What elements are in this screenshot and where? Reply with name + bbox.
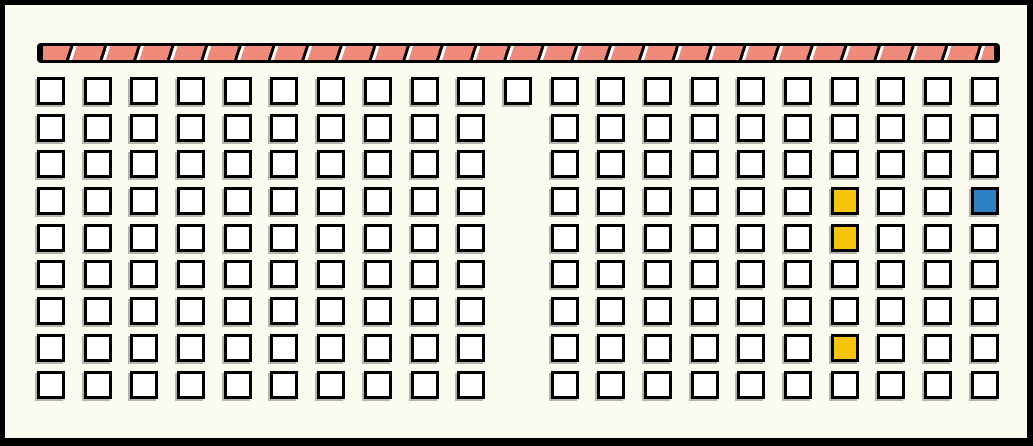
seat[interactable] <box>84 114 112 142</box>
seat[interactable] <box>37 187 65 215</box>
seat[interactable] <box>597 150 625 178</box>
seat[interactable] <box>224 334 252 362</box>
seat[interactable] <box>924 77 952 105</box>
seat[interactable] <box>644 260 672 288</box>
seat[interactable] <box>364 371 392 399</box>
seat[interactable] <box>597 297 625 325</box>
seat[interactable] <box>877 187 905 215</box>
seat[interactable] <box>644 77 672 105</box>
seat[interactable] <box>877 297 905 325</box>
seat[interactable] <box>317 224 345 252</box>
seat[interactable] <box>177 260 205 288</box>
seat[interactable] <box>37 77 65 105</box>
seat[interactable] <box>597 114 625 142</box>
seat[interactable] <box>784 334 812 362</box>
seat[interactable] <box>551 297 579 325</box>
seat[interactable] <box>84 334 112 362</box>
seat[interactable] <box>130 77 158 105</box>
seat[interactable] <box>551 260 579 288</box>
seat[interactable] <box>971 187 999 215</box>
seat[interactable] <box>177 150 205 178</box>
seat[interactable] <box>177 334 205 362</box>
seat[interactable] <box>551 150 579 178</box>
seat[interactable] <box>924 297 952 325</box>
seat[interactable] <box>644 187 672 215</box>
seat[interactable] <box>224 187 252 215</box>
seat[interactable] <box>877 150 905 178</box>
seat[interactable] <box>130 297 158 325</box>
room-frame <box>0 0 1033 446</box>
seat[interactable] <box>364 224 392 252</box>
seat[interactable] <box>877 77 905 105</box>
seat[interactable] <box>364 260 392 288</box>
seat[interactable] <box>411 150 439 178</box>
seat[interactable] <box>37 260 65 288</box>
seat[interactable] <box>457 187 485 215</box>
seat[interactable] <box>737 224 765 252</box>
seat[interactable] <box>177 371 205 399</box>
seat[interactable] <box>644 224 672 252</box>
seat[interactable] <box>364 187 392 215</box>
seat[interactable] <box>784 260 812 288</box>
seat[interactable] <box>644 297 672 325</box>
seat[interactable] <box>457 297 485 325</box>
seat[interactable] <box>691 114 719 142</box>
seat[interactable] <box>551 371 579 399</box>
seat-grid <box>37 77 999 399</box>
seat[interactable] <box>691 297 719 325</box>
seat[interactable] <box>737 150 765 178</box>
seat[interactable] <box>691 187 719 215</box>
seat[interactable] <box>831 297 859 325</box>
seat[interactable] <box>597 260 625 288</box>
seat[interactable] <box>317 260 345 288</box>
seat[interactable] <box>737 334 765 362</box>
seat[interactable] <box>270 297 298 325</box>
seat[interactable] <box>364 297 392 325</box>
seat[interactable] <box>597 224 625 252</box>
seat[interactable] <box>691 150 719 178</box>
seat[interactable] <box>784 114 812 142</box>
seat[interactable] <box>270 224 298 252</box>
seat[interactable] <box>84 224 112 252</box>
seat[interactable] <box>971 371 999 399</box>
seat[interactable] <box>924 150 952 178</box>
seat[interactable] <box>364 150 392 178</box>
seat[interactable] <box>224 260 252 288</box>
seat[interactable] <box>84 77 112 105</box>
seat[interactable] <box>551 224 579 252</box>
seat[interactable] <box>831 150 859 178</box>
seat[interactable] <box>270 150 298 178</box>
seat[interactable] <box>831 371 859 399</box>
seat[interactable] <box>597 371 625 399</box>
seat[interactable] <box>644 114 672 142</box>
seat[interactable] <box>457 150 485 178</box>
seat[interactable] <box>924 260 952 288</box>
seat[interactable] <box>924 114 952 142</box>
seat[interactable] <box>130 114 158 142</box>
seat[interactable] <box>457 224 485 252</box>
seat[interactable] <box>411 334 439 362</box>
seat[interactable] <box>877 224 905 252</box>
seat[interactable] <box>691 224 719 252</box>
seat[interactable] <box>37 114 65 142</box>
seat[interactable] <box>924 187 952 215</box>
seat[interactable] <box>784 371 812 399</box>
seat[interactable] <box>971 334 999 362</box>
seat[interactable] <box>224 77 252 105</box>
seat[interactable] <box>784 224 812 252</box>
seat[interactable] <box>457 334 485 362</box>
seat[interactable] <box>270 260 298 288</box>
seat[interactable] <box>457 260 485 288</box>
seat[interactable] <box>177 114 205 142</box>
seat[interactable] <box>784 187 812 215</box>
seat[interactable] <box>644 371 672 399</box>
seat[interactable] <box>971 297 999 325</box>
seat[interactable] <box>84 260 112 288</box>
seat[interactable] <box>37 150 65 178</box>
seat[interactable] <box>691 77 719 105</box>
seat[interactable] <box>411 297 439 325</box>
seat[interactable] <box>84 150 112 178</box>
seat[interactable] <box>317 297 345 325</box>
seat[interactable] <box>551 114 579 142</box>
seat[interactable] <box>971 114 999 142</box>
seat[interactable] <box>224 297 252 325</box>
seat[interactable] <box>737 297 765 325</box>
seat[interactable] <box>177 297 205 325</box>
seat[interactable] <box>270 77 298 105</box>
seat[interactable] <box>877 114 905 142</box>
seat[interactable] <box>877 334 905 362</box>
seat[interactable] <box>317 77 345 105</box>
seat[interactable] <box>644 334 672 362</box>
seat[interactable] <box>691 260 719 288</box>
seat[interactable] <box>457 114 485 142</box>
front-stripe-bar <box>37 43 1000 63</box>
seat[interactable] <box>411 77 439 105</box>
seat[interactable] <box>877 260 905 288</box>
seat[interactable] <box>924 224 952 252</box>
seat[interactable] <box>317 334 345 362</box>
seat[interactable] <box>317 187 345 215</box>
seat[interactable] <box>130 224 158 252</box>
seat[interactable] <box>84 297 112 325</box>
seat[interactable] <box>971 224 999 252</box>
seat[interactable] <box>364 77 392 105</box>
seat[interactable] <box>737 114 765 142</box>
seat[interactable] <box>130 187 158 215</box>
seat[interactable] <box>224 150 252 178</box>
seat[interactable] <box>130 150 158 178</box>
seat[interactable] <box>411 260 439 288</box>
seat[interactable] <box>971 260 999 288</box>
seat[interactable] <box>411 371 439 399</box>
seat[interactable] <box>177 224 205 252</box>
seat[interactable] <box>597 187 625 215</box>
seat[interactable] <box>831 114 859 142</box>
seat[interactable] <box>551 334 579 362</box>
seat[interactable] <box>457 77 485 105</box>
seat[interactable] <box>270 371 298 399</box>
seat[interactable] <box>971 150 999 178</box>
seat[interactable] <box>597 77 625 105</box>
seat[interactable] <box>37 224 65 252</box>
seat[interactable] <box>177 187 205 215</box>
seat[interactable] <box>924 334 952 362</box>
seat[interactable] <box>737 260 765 288</box>
seat[interactable] <box>737 187 765 215</box>
seat[interactable] <box>737 371 765 399</box>
seat[interactable] <box>270 334 298 362</box>
seat[interactable] <box>270 187 298 215</box>
seat[interactable] <box>877 371 905 399</box>
seat[interactable] <box>644 150 672 178</box>
seat[interactable] <box>177 77 205 105</box>
seat[interactable] <box>224 114 252 142</box>
seat[interactable] <box>971 77 999 105</box>
seat[interactable] <box>597 334 625 362</box>
seat[interactable] <box>411 114 439 142</box>
seat[interactable] <box>831 334 859 362</box>
seat[interactable] <box>364 334 392 362</box>
seat[interactable] <box>411 224 439 252</box>
seat[interactable] <box>130 260 158 288</box>
seat[interactable] <box>270 114 298 142</box>
seat[interactable] <box>130 371 158 399</box>
seat[interactable] <box>224 371 252 399</box>
seat[interactable] <box>317 150 345 178</box>
seat[interactable] <box>551 187 579 215</box>
seat[interactable] <box>784 297 812 325</box>
seat[interactable] <box>784 77 812 105</box>
seat[interactable] <box>84 187 112 215</box>
seat[interactable] <box>784 150 812 178</box>
seat[interactable] <box>37 297 65 325</box>
seat[interactable] <box>831 260 859 288</box>
seat[interactable] <box>924 371 952 399</box>
seat[interactable] <box>457 371 485 399</box>
seat[interactable] <box>37 371 65 399</box>
seat[interactable] <box>691 371 719 399</box>
seat[interactable] <box>831 187 859 215</box>
seat[interactable] <box>224 224 252 252</box>
seat[interactable] <box>84 371 112 399</box>
seat[interactable] <box>691 334 719 362</box>
seat[interactable] <box>737 77 765 105</box>
seat[interactable] <box>551 77 579 105</box>
seat[interactable] <box>831 77 859 105</box>
seat[interactable] <box>130 334 158 362</box>
seat[interactable] <box>364 114 392 142</box>
seat[interactable] <box>317 371 345 399</box>
seat[interactable] <box>411 187 439 215</box>
seat[interactable] <box>831 224 859 252</box>
seat[interactable] <box>37 334 65 362</box>
seat[interactable] <box>317 114 345 142</box>
seat[interactable] <box>504 77 532 105</box>
